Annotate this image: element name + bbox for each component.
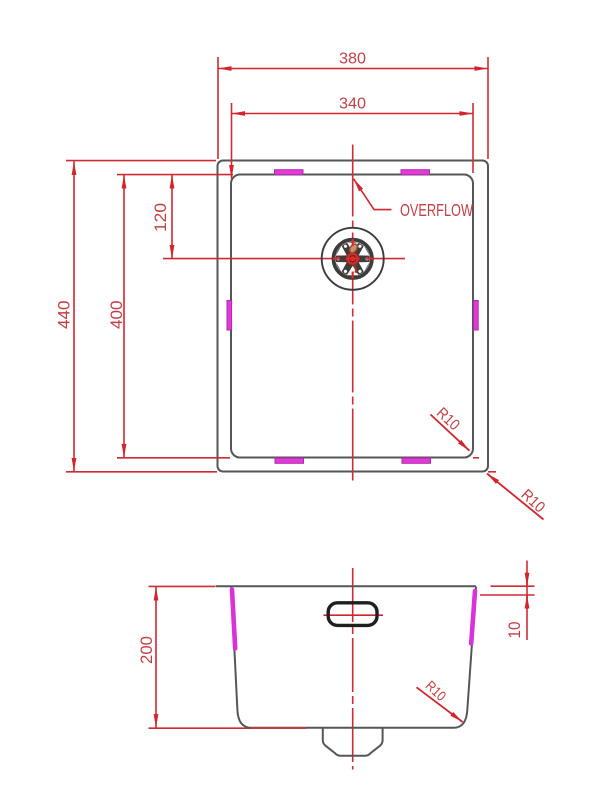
svg-text:200: 200: [138, 636, 156, 664]
svg-text:440: 440: [56, 301, 74, 330]
svg-text:R10: R10: [518, 486, 549, 516]
svg-text:OVERFLOW: OVERFLOW: [400, 200, 473, 220]
svg-text:R10: R10: [423, 677, 450, 704]
svg-text:120: 120: [152, 203, 170, 232]
svg-text:380: 380: [339, 51, 366, 68]
svg-text:400: 400: [108, 301, 126, 330]
svg-text:10: 10: [506, 622, 524, 639]
svg-text:340: 340: [339, 96, 366, 113]
